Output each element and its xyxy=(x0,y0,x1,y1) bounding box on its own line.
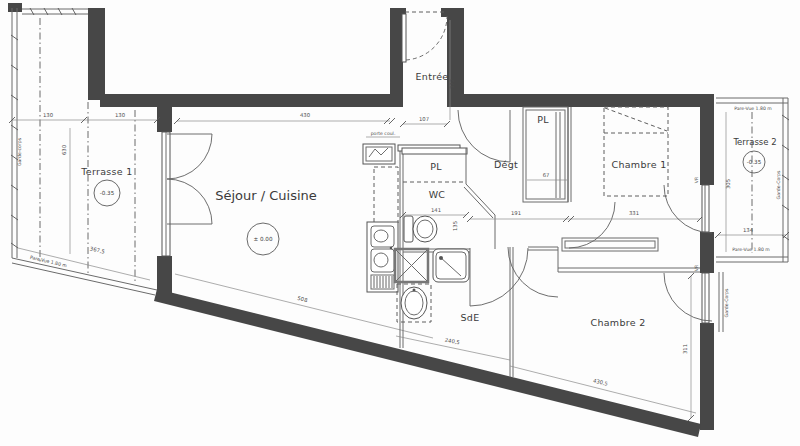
dim-terrasse1-depth: 630 xyxy=(61,144,67,155)
sliding-door-label: porte coul. xyxy=(371,131,396,136)
chambre-1: Chambre 1 VR xyxy=(562,107,712,251)
room-label-entree: Entrée xyxy=(416,71,449,82)
pare-vue-label-terrasse2-bottom: Pare-Vue 1.80 m xyxy=(732,247,770,252)
bed xyxy=(604,107,668,196)
door-swing-sde xyxy=(470,248,528,306)
floor-plan-drawing: 130 130 630 Garde-corps 367,5 Pare-Vue 1… xyxy=(0,0,800,446)
dim-terrasse2-depth: 305 xyxy=(725,179,731,189)
room-label-degt: Dégt xyxy=(494,159,518,170)
faucet-dot xyxy=(390,247,393,250)
shower-drain xyxy=(439,256,443,260)
garde-corps-label-terrasse2: Garde-Corps xyxy=(776,170,781,199)
wc-block: PL WC 141 135 xyxy=(400,148,495,252)
room-label-sejour: Séjour / Cuisine xyxy=(215,188,317,203)
room-label-chambre1: Chambre 1 xyxy=(611,159,666,170)
salle-deau: SdE 240,5 xyxy=(395,249,510,360)
shower-tray xyxy=(433,249,469,282)
dim-entree-depth: 372 xyxy=(449,79,455,89)
kitchen-counter xyxy=(367,222,398,292)
dim-chambre2-slope: 430,5 xyxy=(592,377,608,386)
fridge-slot xyxy=(374,167,398,223)
level-value-sejour: ± 0.00 xyxy=(254,236,273,242)
dim-terrasse2-width: 134 xyxy=(743,227,754,233)
terrasse-1: 130 130 630 Garde-corps 367,5 Pare-Vue 1… xyxy=(9,8,160,295)
garde-corps-label-terrasse1: Garde-corps xyxy=(17,137,22,166)
dim-pl-width: 67 xyxy=(543,172,550,178)
room-label-sde: SdE xyxy=(461,312,480,323)
level-value-terrasse2: -0.35 xyxy=(747,159,762,165)
wardrobe xyxy=(562,238,658,251)
pare-vue-label-terrasse2-top: Pare-Vue 1.80 m xyxy=(734,106,772,111)
door-swing-chambre2 xyxy=(508,247,558,297)
room-label-chambre2: Chambre 2 xyxy=(590,317,645,328)
room-label-terrasse1: Terrasse 1 xyxy=(80,166,132,177)
garde-corps-label-chambre2: Garde-Corps xyxy=(724,288,729,317)
dim-wc-depth: 135 xyxy=(452,221,458,231)
dim-chambre2-depth: 311 xyxy=(682,344,688,354)
toilet-tank xyxy=(404,216,413,242)
closet-pl2: PL 67 xyxy=(523,107,568,202)
dim-degt-width: 191 xyxy=(511,210,521,216)
room-label-terrasse2: Terrasse 2 xyxy=(732,137,776,147)
vr-label-chambre1: VR xyxy=(694,176,699,183)
room-label-pl-wc: PL xyxy=(430,161,442,172)
dim-chambre1-width: 331 xyxy=(629,210,639,216)
floor-plan: 130 130 630 Garde-corps 367,5 Pare-Vue 1… xyxy=(0,0,800,446)
dim-sejour-width: 430 xyxy=(300,112,311,118)
dim-entree-width: 107 xyxy=(419,116,429,122)
dim-wc-width: 141 xyxy=(431,207,441,213)
dim-sejour-slope: 508 xyxy=(297,295,309,303)
dim-terrasse1-slope: 367,5 xyxy=(89,245,105,254)
dim-terrasse1-width-a: 130 xyxy=(43,112,54,118)
outer-walls xyxy=(8,3,714,437)
dim-sde-slope: 240,5 xyxy=(444,337,460,346)
entry-door-swing xyxy=(406,16,447,60)
level-value-terrasse1: -0.35 xyxy=(100,190,115,196)
terrasse-2: Pare-Vue 1.80 m Terrasse 2 -0.35 134 305… xyxy=(715,98,789,262)
entry-door-leaf xyxy=(402,14,406,62)
vr-label-chambre2: VR xyxy=(694,264,699,271)
room-label-wc: WC xyxy=(429,189,446,200)
room-label-pl-degt: PL xyxy=(537,114,549,125)
dim-terrasse1-width-b: 130 xyxy=(115,112,126,118)
